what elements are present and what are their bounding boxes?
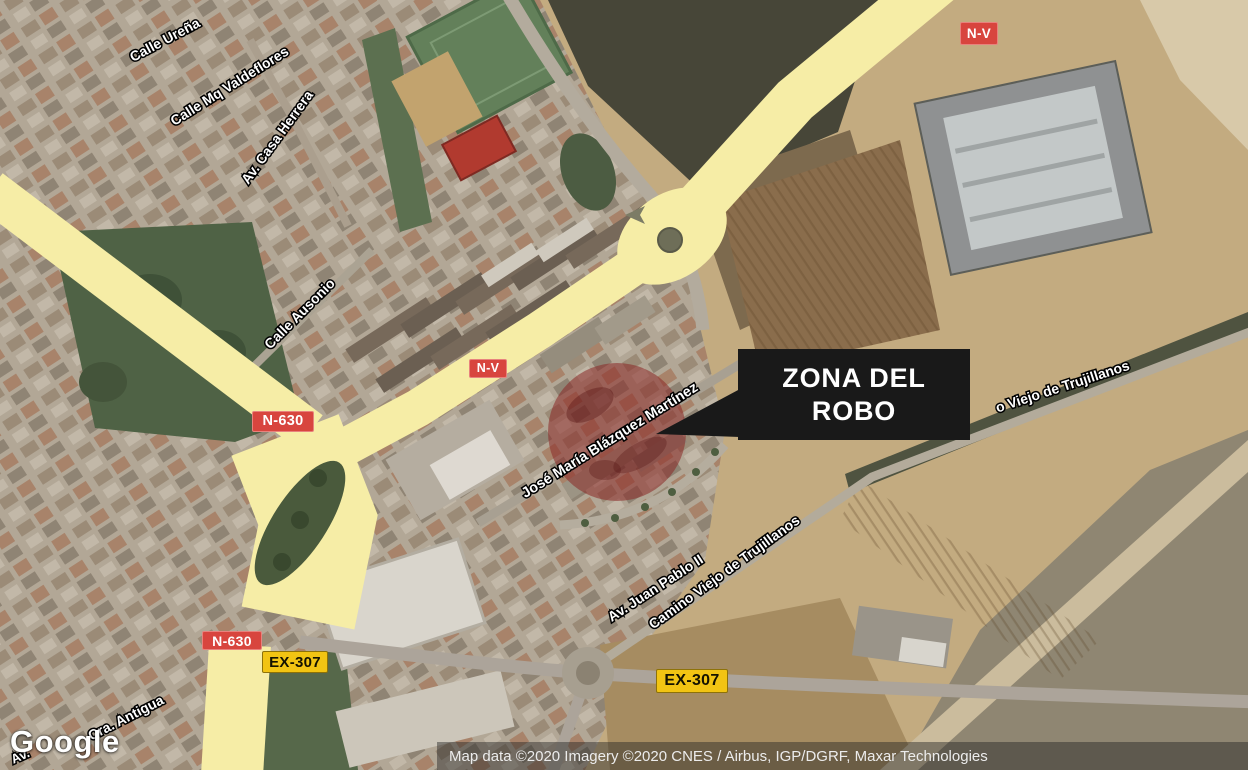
route-shield-n630-bottom: N-630 — [202, 631, 262, 650]
route-shield-ex307-east: EX-307 — [656, 669, 728, 693]
route-shield-nv-top: N-V — [960, 22, 998, 45]
roundabout-island — [658, 228, 682, 252]
route-shield-nv-mid: N-V — [469, 359, 507, 378]
google-logo[interactable]: Google — [10, 724, 120, 760]
attribution-text: Map data ©2020 Imagery ©2020 CNES / Airb… — [449, 748, 988, 765]
route-shield-n630-top: N-630 — [252, 411, 314, 432]
map-imagery: Calle Ureña Calle Mq Valdeflores Av. Cas… — [0, 0, 1248, 770]
attribution-bar: Map data ©2020 Imagery ©2020 CNES / Airb… — [437, 742, 1248, 770]
zone-callout-label: ZONA DEL ROBO — [772, 362, 937, 428]
zone-callout: ZONA DEL ROBO — [738, 349, 970, 440]
satellite-map[interactable]: Calle Ureña Calle Mq Valdeflores Av. Cas… — [0, 0, 1248, 770]
route-shield-ex307-west: EX-307 — [262, 651, 328, 673]
